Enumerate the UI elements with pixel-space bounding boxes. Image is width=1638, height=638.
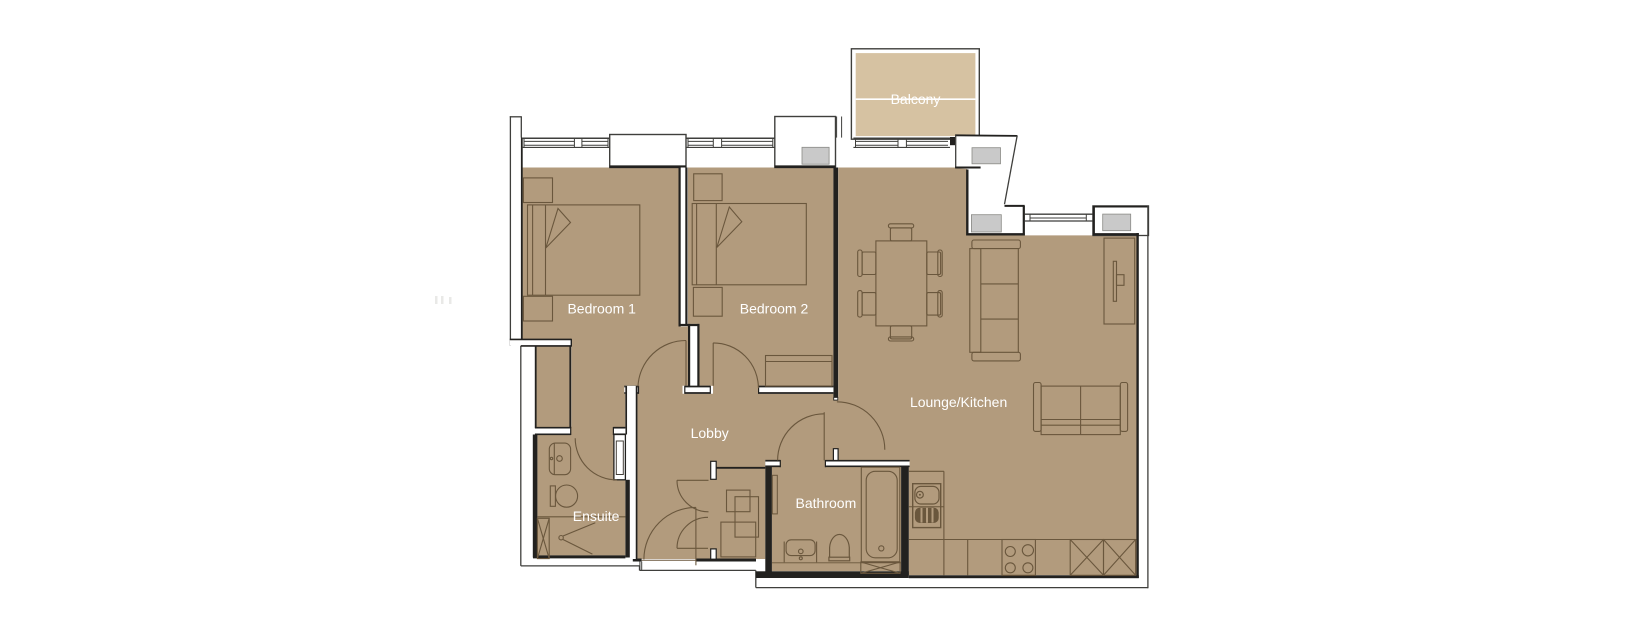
svg-text:Bathroom: Bathroom [796, 495, 857, 511]
svg-text:Ensuite: Ensuite [573, 508, 620, 524]
svg-text:Balcony: Balcony [891, 91, 941, 107]
svg-text:Lobby: Lobby [691, 425, 729, 441]
svg-text:Lounge/Kitchen: Lounge/Kitchen [910, 394, 1007, 410]
svg-text:Bedroom 1: Bedroom 1 [567, 301, 636, 317]
svg-text:Bedroom 2: Bedroom 2 [740, 301, 809, 317]
